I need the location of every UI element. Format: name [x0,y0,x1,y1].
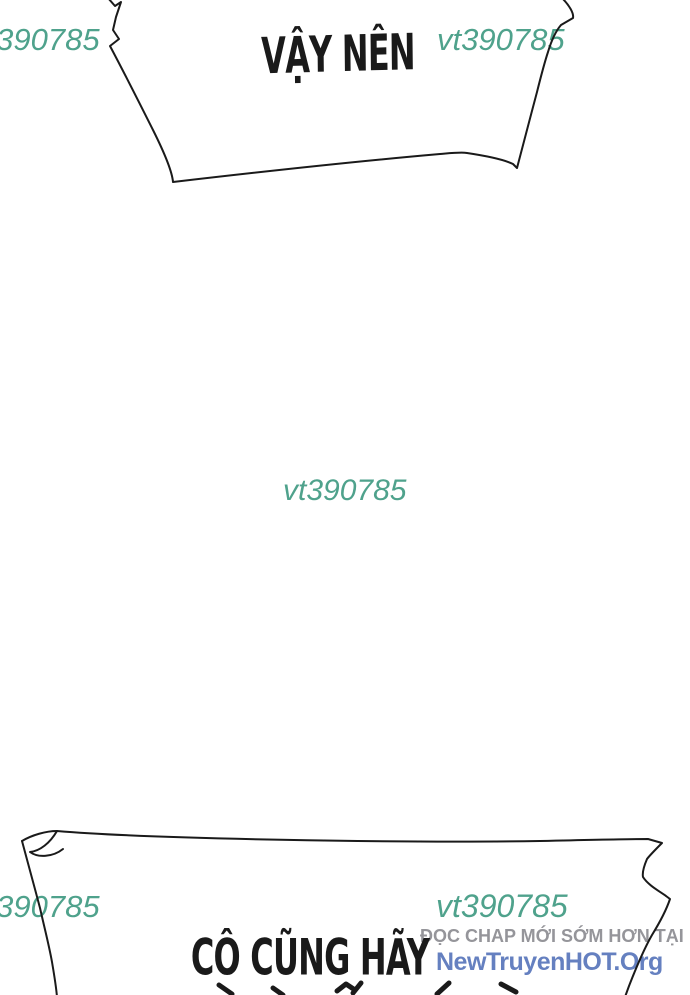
promo-site-name: NewTruyenHOT.Org [436,948,663,977]
bottom-speech-bubble-curl [30,831,63,856]
promo-tagline: ĐỌC CHAP MỚI SỚM HƠN TẠI [420,926,684,947]
watermark-top-right: vt390785 [437,22,565,58]
comic-page: vt390785 vt390785 vt390785 vt390785 vt39… [0,0,690,995]
watermark-bottom-right: vt390785 [436,888,568,925]
watermark-center: vt390785 [283,474,406,508]
watermark-bottom-left: vt390785 [0,889,100,925]
top-bubble-dialogue: VẬY NÊN [261,24,415,86]
bottom-bubble-dialogue: CÔ CŨNG HÃY [191,929,429,987]
watermark-top-left: vt390785 [0,22,100,58]
